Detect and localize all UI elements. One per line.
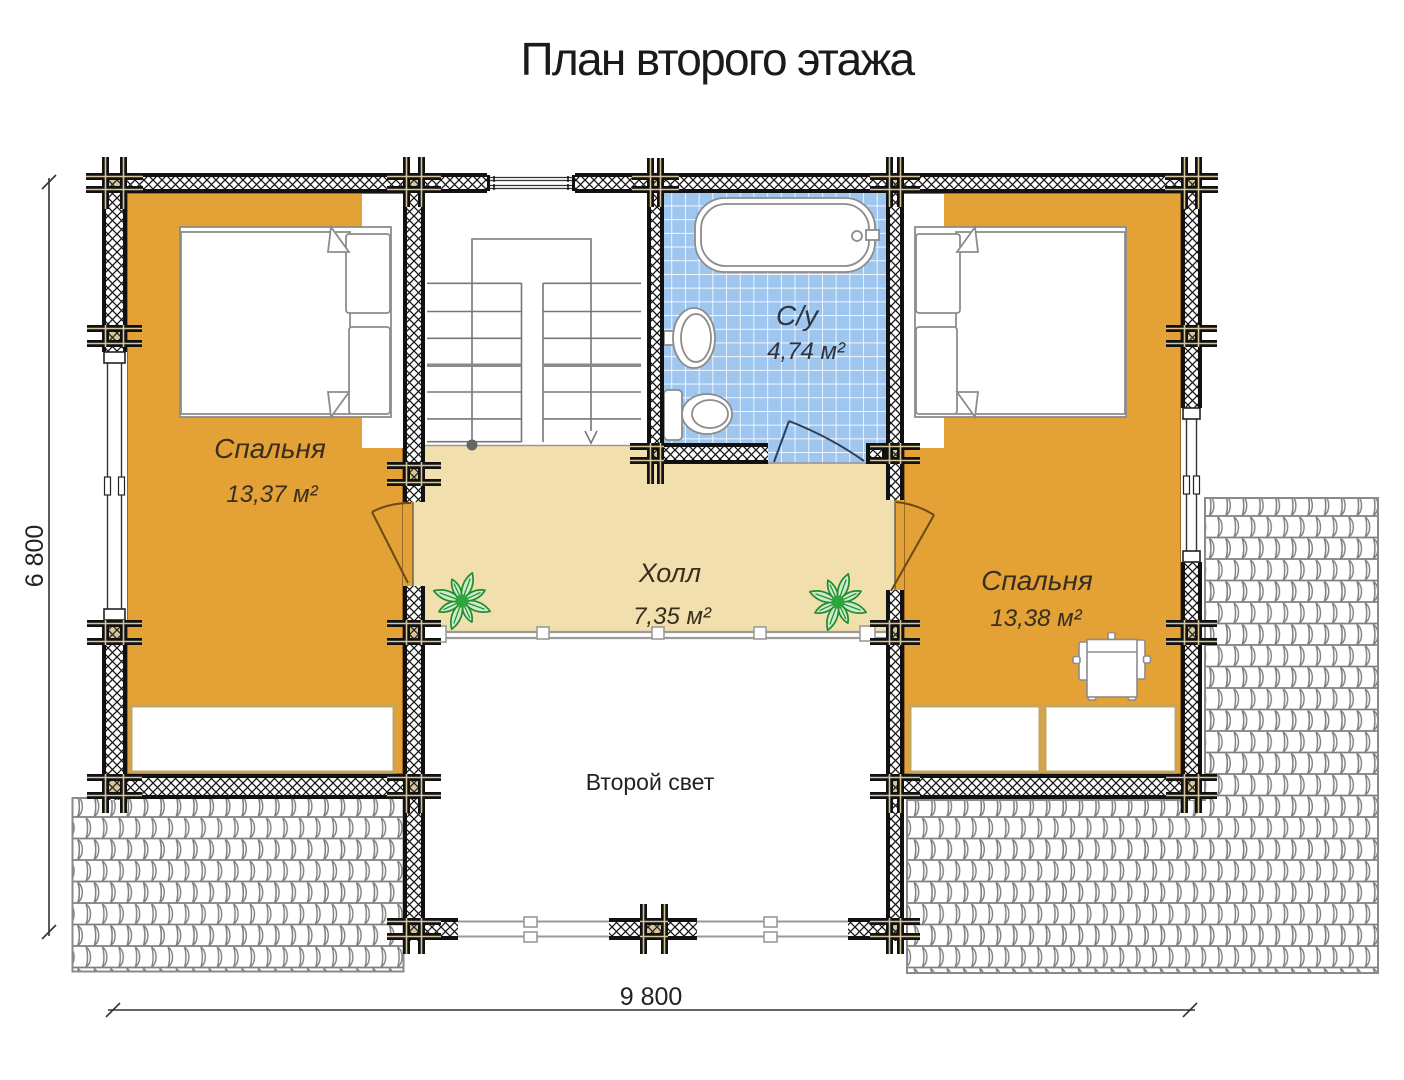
svg-text:Спальня: Спальня <box>214 433 326 464</box>
svg-text:13,38 м²: 13,38 м² <box>990 605 1082 632</box>
svg-text:4,74 м²: 4,74 м² <box>767 338 846 365</box>
svg-text:План второго этажа: План второго этажа <box>521 33 916 85</box>
svg-text:13,37 м²: 13,37 м² <box>226 481 318 508</box>
svg-text:9 800: 9 800 <box>620 983 683 1011</box>
svg-text:Холл: Холл <box>638 558 701 588</box>
svg-text:Второй свет: Второй свет <box>586 769 715 795</box>
svg-text:7,35 м²: 7,35 м² <box>633 603 712 630</box>
svg-text:С/у: С/у <box>776 300 820 331</box>
svg-text:Спальня: Спальня <box>981 565 1093 596</box>
svg-text:6 800: 6 800 <box>21 525 49 588</box>
